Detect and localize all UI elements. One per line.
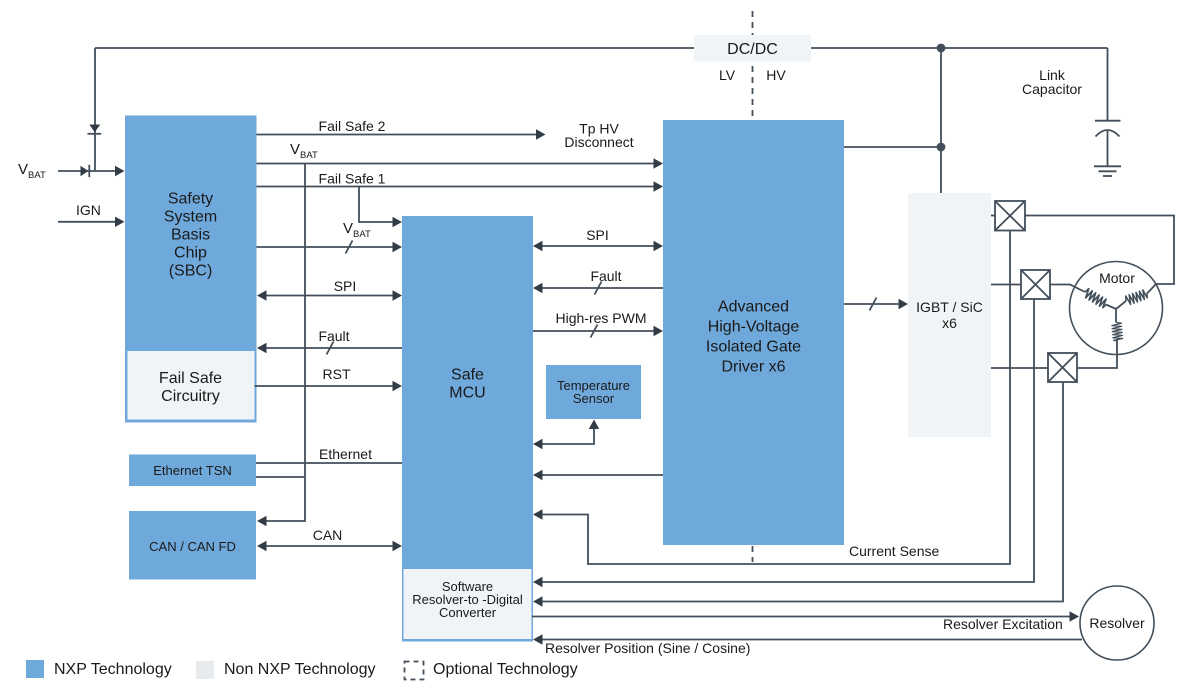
svg-text:Ethernet TSN: Ethernet TSN <box>153 463 232 478</box>
svg-text:Ethernet: Ethernet <box>319 446 372 462</box>
svg-text:Converter: Converter <box>439 605 497 620</box>
svg-text:Resolver: Resolver <box>1089 615 1145 631</box>
svg-text:NXP Technology: NXP Technology <box>54 661 172 678</box>
svg-text:Fail Safe: Fail Safe <box>159 370 222 387</box>
svg-text:SPI: SPI <box>586 227 609 243</box>
svg-text:HV: HV <box>766 67 786 83</box>
svg-text:Non NXP Technology: Non NXP Technology <box>224 661 376 678</box>
svg-text:Basis: Basis <box>171 227 210 244</box>
svg-text:MCU: MCU <box>449 385 485 402</box>
svg-text:High-res PWM: High-res PWM <box>555 310 646 326</box>
svg-text:Optional Technology: Optional Technology <box>433 661 578 678</box>
svg-text:IGN: IGN <box>76 202 101 218</box>
svg-text:High-Voltage: High-Voltage <box>708 319 800 336</box>
svg-text:SPI: SPI <box>334 278 357 294</box>
svg-text:DC/DC: DC/DC <box>727 41 778 58</box>
svg-text:Fault: Fault <box>590 268 621 284</box>
svg-text:Motor: Motor <box>1099 270 1135 286</box>
svg-text:IGBT / SiC: IGBT / SiC <box>916 299 983 315</box>
svg-text:LV: LV <box>719 67 736 83</box>
svg-text:Fail Safe 2: Fail Safe 2 <box>319 118 386 134</box>
svg-text:Capacitor: Capacitor <box>1022 81 1082 97</box>
svg-text:(SBC): (SBC) <box>169 263 213 280</box>
svg-text:Disconnect: Disconnect <box>564 134 633 150</box>
svg-text:CAN / CAN FD: CAN / CAN FD <box>149 539 236 554</box>
svg-text:Fail Safe 1: Fail Safe 1 <box>319 171 386 187</box>
svg-text:System: System <box>164 209 217 226</box>
svg-text:Safe: Safe <box>451 367 484 384</box>
svg-text:Chip: Chip <box>174 245 207 262</box>
svg-text:CAN: CAN <box>313 527 343 543</box>
svg-text:Current Sense: Current Sense <box>849 543 939 559</box>
svg-text:Resolver Position (Sine / Cosi: Resolver Position (Sine / Cosine) <box>545 640 750 656</box>
svg-text:Advanced: Advanced <box>718 299 789 316</box>
svg-text:RST: RST <box>323 366 351 382</box>
svg-text:Resolver Excitation: Resolver Excitation <box>943 616 1063 632</box>
svg-text:Driver x6: Driver x6 <box>721 359 785 376</box>
svg-text:Sensor: Sensor <box>573 391 615 406</box>
svg-text:Safety: Safety <box>168 191 213 208</box>
svg-text:x6: x6 <box>942 315 957 331</box>
svg-text:Isolated Gate: Isolated Gate <box>706 339 801 356</box>
svg-text:Fault: Fault <box>318 328 349 344</box>
svg-text:Circuitry: Circuitry <box>161 388 220 405</box>
